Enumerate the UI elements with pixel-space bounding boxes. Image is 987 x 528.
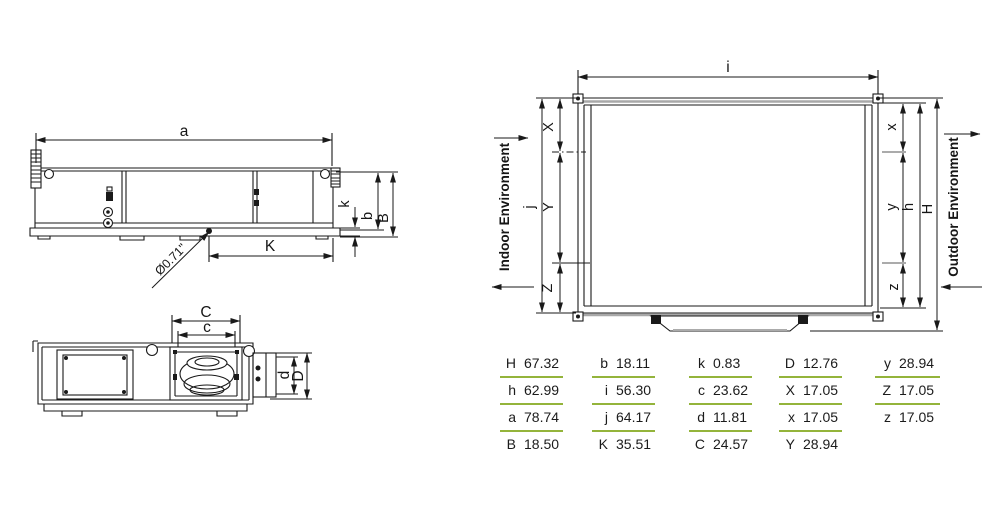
dim-key: X [779,378,795,403]
table-row: z17.05 [875,405,940,432]
technical-drawing-page: Ø0.71" a K k b B [0,0,987,528]
table-column-1: H67.32 h62.99 a78.74 B18.50 [500,351,563,459]
table-row: C24.57 [689,432,752,459]
table-row: H67.32 [500,351,563,378]
dim-key: x [779,405,795,430]
table-row: X17.05 [779,378,842,405]
table-row: Z17.05 [875,378,940,405]
table-column-3: k0.83 c23.62 d11.81 C24.57 [689,351,752,459]
dim-value: 78.74 [524,405,559,430]
dim-value: 62.99 [524,378,559,403]
dimension-table: H67.32 h62.99 a78.74 B18.50 b18.11 i56.3… [0,0,987,528]
dim-key: d [689,405,705,430]
dim-key: B [500,432,516,457]
table-row: c23.62 [689,378,752,405]
dim-value: 64.17 [616,405,651,430]
dim-value: 0.83 [713,351,740,376]
table-column-2: b18.11 i56.30 j64.17 K35.51 [592,351,655,459]
dim-key: Y [779,432,795,457]
dim-key: C [689,432,705,457]
table-row: k0.83 [689,351,752,378]
dim-key: i [592,378,608,403]
dim-key: K [592,432,608,457]
dim-key: b [592,351,608,376]
table-row: b18.11 [592,351,655,378]
dim-value: 28.94 [803,432,838,457]
table-row: j64.17 [592,405,655,432]
table-row: x17.05 [779,405,842,432]
dim-key: D [779,351,795,376]
table-column-4: D12.76 X17.05 x17.05 Y28.94 [779,351,842,459]
dim-value: 67.32 [524,351,559,376]
dim-value: 18.50 [524,432,559,457]
dim-value: 28.94 [899,351,934,376]
dim-value: 56.30 [616,378,651,403]
table-row: y28.94 [875,351,940,378]
dim-key: Z [875,378,891,403]
table-row: a78.74 [500,405,563,432]
table-row: Y28.94 [779,432,842,459]
dim-key: a [500,405,516,430]
dim-key: h [500,378,516,403]
dim-value: 11.81 [713,405,747,430]
dim-value: 18.11 [616,351,650,376]
table-row: D12.76 [779,351,842,378]
table-row: i56.30 [592,378,655,405]
dim-value: 17.05 [899,405,934,430]
dim-key: j [592,405,608,430]
dim-value: 24.57 [713,432,748,457]
table-row: d11.81 [689,405,752,432]
dim-key: c [689,378,705,403]
dim-value: 17.05 [803,405,838,430]
table-row: h62.99 [500,378,563,405]
dim-value: 17.05 [803,378,838,403]
dim-key: y [875,351,891,376]
table-row: B18.50 [500,432,563,459]
dim-value: 17.05 [899,378,934,403]
dim-key: k [689,351,705,376]
dim-value: 23.62 [713,378,748,403]
table-column-5: y28.94 Z17.05 z17.05 [875,351,940,432]
dim-value: 12.76 [803,351,838,376]
dim-value: 35.51 [616,432,651,457]
dim-key: H [500,351,516,376]
table-row: K35.51 [592,432,655,459]
dim-key: z [875,405,891,430]
